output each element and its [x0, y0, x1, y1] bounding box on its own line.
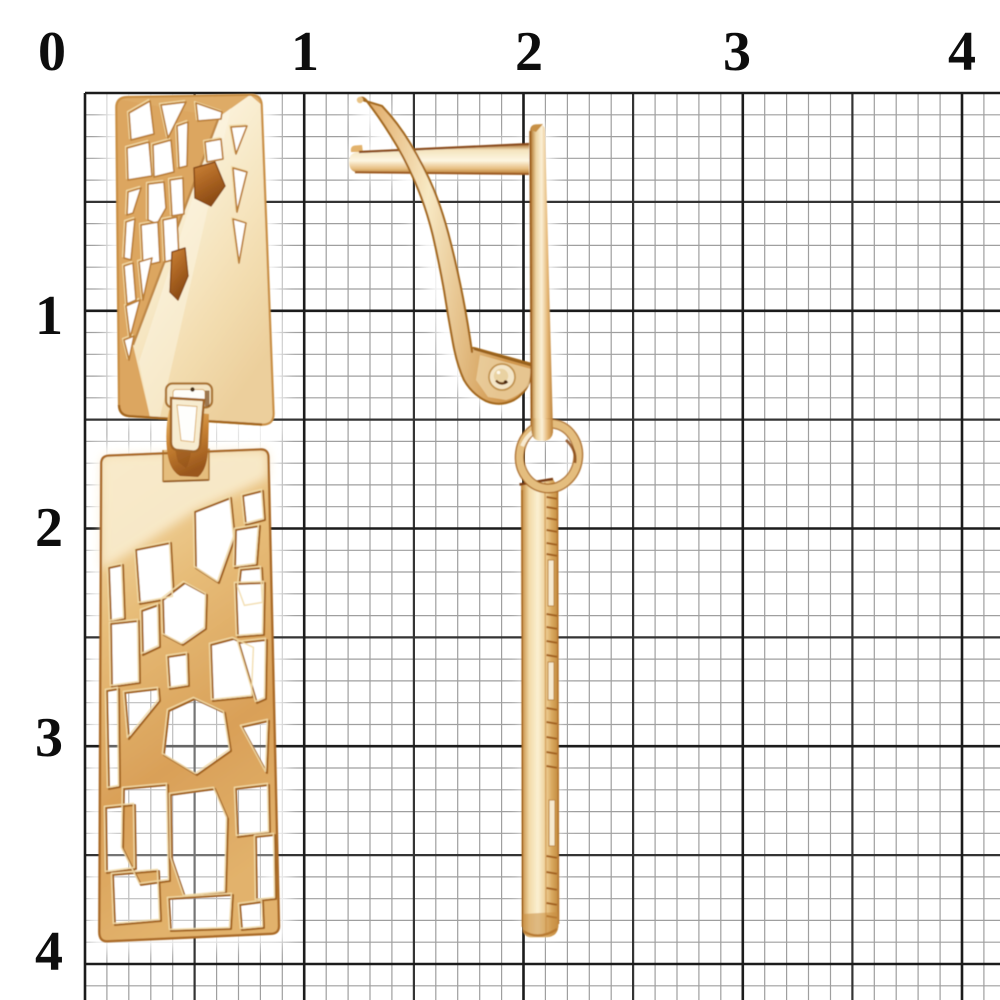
svg-text:2: 2 [515, 21, 543, 83]
svg-text:1: 1 [35, 285, 63, 347]
svg-text:3: 3 [35, 707, 63, 769]
svg-text:3: 3 [723, 21, 751, 83]
svg-text:4: 4 [35, 921, 63, 983]
svg-text:1: 1 [291, 21, 319, 83]
svg-text:4: 4 [948, 21, 976, 83]
svg-text:0: 0 [38, 21, 66, 83]
svg-text:2: 2 [35, 497, 63, 559]
